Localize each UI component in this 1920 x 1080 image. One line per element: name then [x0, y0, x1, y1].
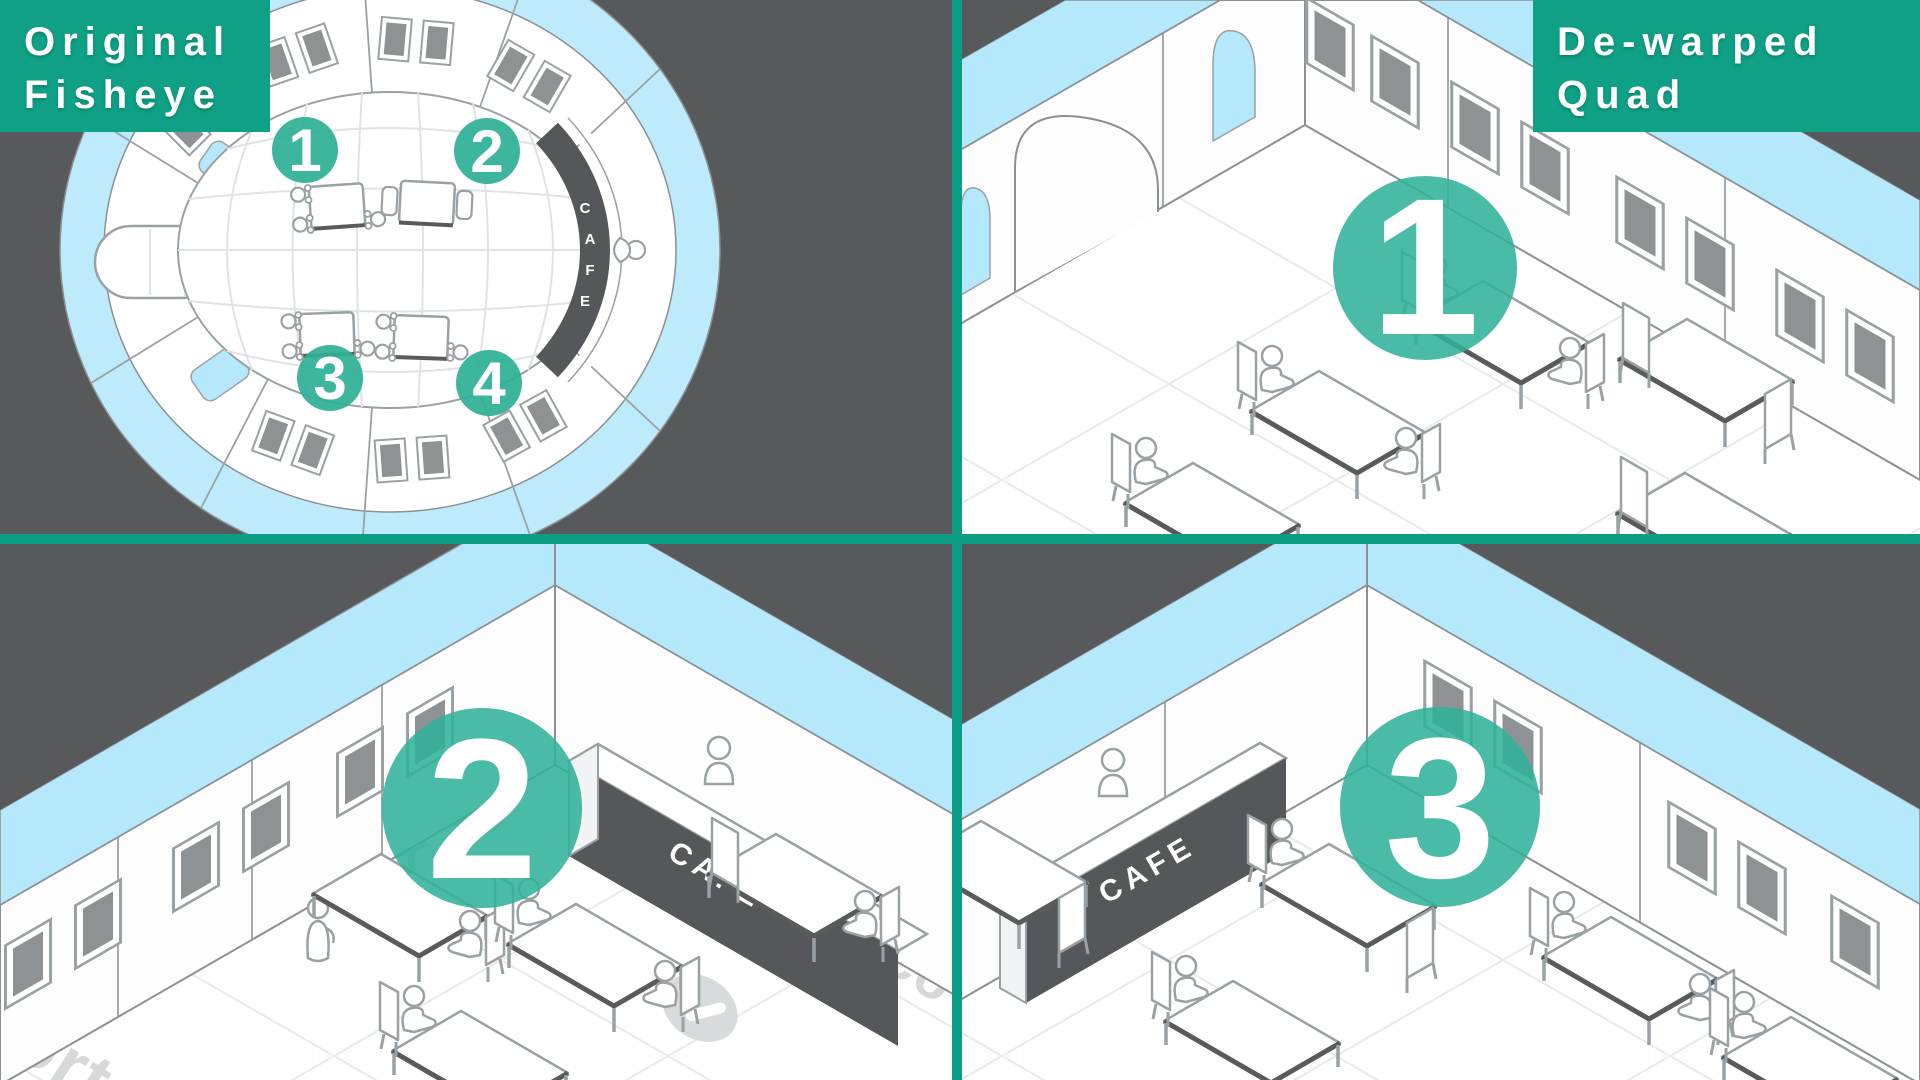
dewarped-quad-label: De-warped Quad — [1533, 0, 1920, 132]
dewarped-view-2: ortex eocortex eoco ortex eoco — [0, 490, 969, 1080]
cafe-letter: A — [585, 231, 596, 248]
view-number: 2 — [426, 698, 537, 921]
scene: C A F E — [0, 0, 1920, 1080]
badge-number: 3 — [313, 345, 346, 412]
original-fisheye-label: Original Fisheye — [0, 0, 270, 132]
label-line: De-warped — [1557, 16, 1896, 69]
cafe-letter: E — [580, 293, 590, 310]
label-line: Quad — [1557, 69, 1896, 122]
cafe-letter: C — [580, 200, 591, 217]
cafe-letter: F — [585, 262, 594, 279]
view-number: 3 — [1384, 697, 1495, 920]
label-line: Fisheye — [24, 69, 246, 122]
vertical-divider — [952, 0, 962, 1080]
arched-window — [961, 188, 990, 295]
label-line: Original — [24, 16, 246, 69]
badge-number: 4 — [472, 350, 506, 417]
badge-number: 1 — [288, 117, 321, 184]
view-number: 1 — [1371, 158, 1479, 376]
fisheye-dewarp-illustration: C A F E — [0, 0, 1920, 1080]
badge-number: 2 — [470, 118, 503, 185]
dewarped-view-3: CAFE 3 — [912, 490, 1920, 1080]
